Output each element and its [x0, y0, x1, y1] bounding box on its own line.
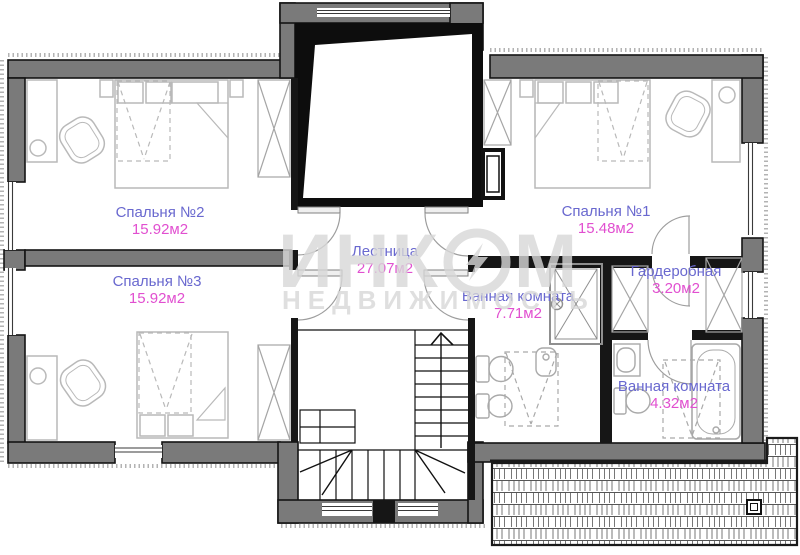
- chimney-niche: [483, 150, 503, 198]
- furniture-bedroom1: [484, 80, 740, 188]
- furniture-bathroom-432: [614, 344, 740, 439]
- stairwell-void: [295, 23, 483, 207]
- furniture-bathroom-771: [476, 264, 602, 426]
- staircase: [298, 330, 468, 500]
- furniture-wardrobe-closets: [612, 258, 742, 332]
- furniture-bedroom3: [27, 332, 290, 440]
- furniture-bedroom2: [27, 80, 290, 188]
- floor-plan-drawing: [0, 0, 800, 555]
- floor-plan-canvas: Спальня №2 15.92м2 Спальня №3 15.92м2 Ле…: [0, 0, 800, 555]
